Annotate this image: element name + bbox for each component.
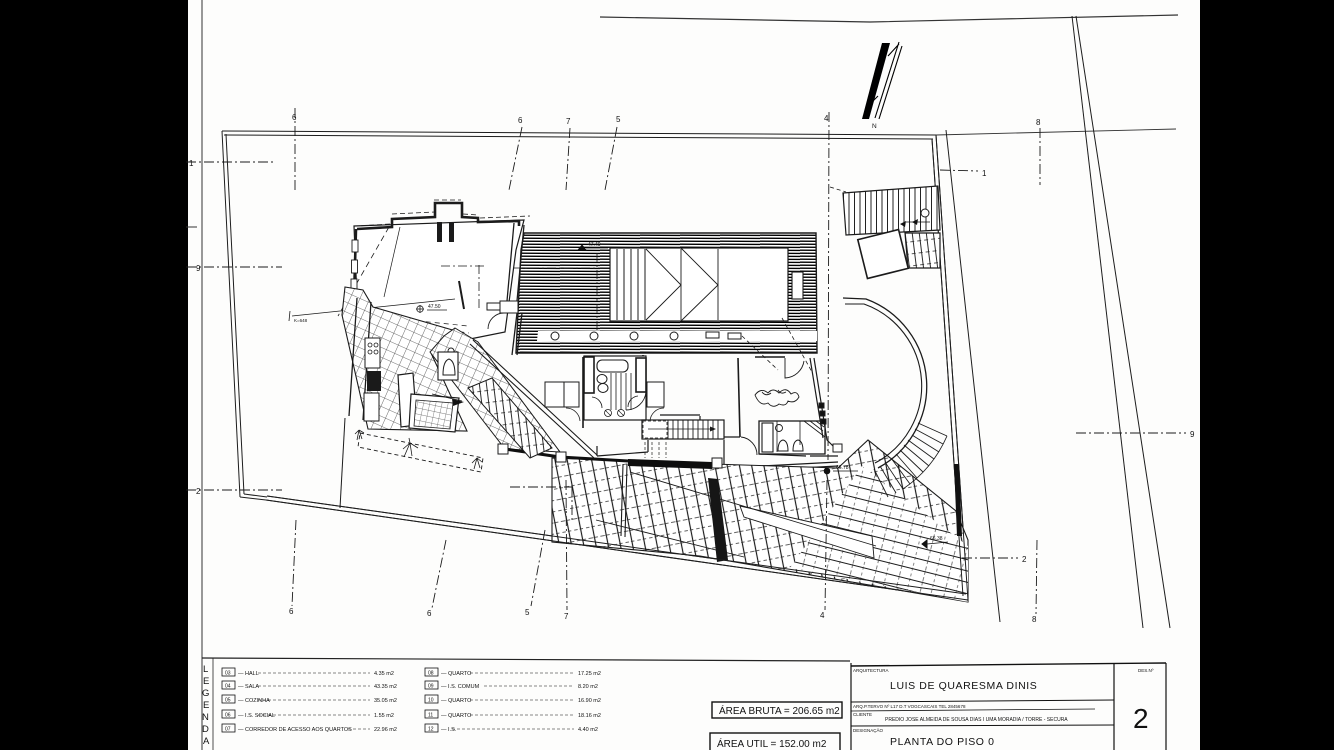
svg-text:08: 08 bbox=[428, 671, 434, 677]
svg-text:8: 8 bbox=[1036, 118, 1041, 127]
svg-text:ARQUITECTURA: ARQUITECTURA bbox=[853, 668, 889, 673]
svg-text:5: 5 bbox=[616, 115, 621, 124]
svg-text:43.35 m2: 43.35 m2 bbox=[374, 684, 397, 690]
svg-text:4.40 m2: 4.40 m2 bbox=[578, 727, 598, 733]
svg-text:G: G bbox=[202, 688, 209, 699]
svg-text:DES.Nº: DES.Nº bbox=[1138, 668, 1154, 673]
svg-text:66.38: 66.38 bbox=[930, 536, 943, 542]
svg-text:12: 12 bbox=[428, 727, 434, 733]
svg-text:D: D bbox=[202, 724, 209, 735]
svg-text:04: 04 bbox=[225, 684, 231, 690]
svg-text:— I.S. COMUM: — I.S. COMUM bbox=[441, 684, 480, 690]
svg-text:16.90 m2: 16.90 m2 bbox=[578, 698, 601, 704]
svg-text:1.55 m2: 1.55 m2 bbox=[374, 713, 394, 719]
svg-text:4: 4 bbox=[820, 611, 825, 620]
svg-text:LUIS DE QUARESMA DINIS: LUIS DE QUARESMA DINIS bbox=[890, 680, 1037, 692]
svg-text:11: 11 bbox=[428, 713, 433, 719]
svg-text:7: 7 bbox=[566, 117, 571, 126]
svg-text:K=648: K=648 bbox=[294, 318, 308, 323]
svg-text:2: 2 bbox=[1133, 703, 1149, 734]
svg-text:— QUARTO: — QUARTO bbox=[441, 698, 472, 704]
svg-text:N: N bbox=[872, 123, 877, 130]
svg-text:— I.S. SOCIAL: — I.S. SOCIAL bbox=[238, 713, 275, 719]
svg-text:47.50: 47.50 bbox=[428, 304, 441, 310]
svg-text:E: E bbox=[203, 700, 209, 711]
svg-text:— QUARTO: — QUARTO bbox=[441, 671, 472, 677]
svg-text:10: 10 bbox=[428, 698, 434, 704]
svg-text:CLIENTE: CLIENTE bbox=[853, 712, 872, 717]
svg-text:1: 1 bbox=[982, 169, 987, 178]
svg-text:5: 5 bbox=[525, 608, 530, 617]
svg-text:06: 06 bbox=[225, 713, 231, 719]
svg-text:N: N bbox=[202, 712, 209, 723]
svg-text:05: 05 bbox=[225, 698, 231, 704]
svg-text:07: 07 bbox=[225, 727, 231, 733]
svg-text:— CORREDOR DE ACESSO AOS QUART: — CORREDOR DE ACESSO AOS QUARTOS bbox=[238, 727, 352, 733]
svg-text:8: 8 bbox=[1032, 615, 1037, 624]
svg-text:6: 6 bbox=[427, 609, 432, 618]
svg-text:2: 2 bbox=[1022, 555, 1027, 564]
svg-text:ÁREA BRUTA = 206.65 m2: ÁREA BRUTA = 206.65 m2 bbox=[719, 704, 840, 717]
svg-text:E: E bbox=[203, 676, 209, 687]
svg-text:9: 9 bbox=[196, 264, 201, 273]
svg-text:1: 1 bbox=[189, 159, 194, 168]
svg-text:22.96 m2: 22.96 m2 bbox=[374, 727, 397, 733]
svg-text:66.78: 66.78 bbox=[836, 465, 849, 471]
svg-text:4.35 m2: 4.35 m2 bbox=[374, 671, 394, 677]
svg-text:PLANTA DO PISO 0: PLANTA DO PISO 0 bbox=[890, 736, 995, 748]
svg-text:17.25 m2: 17.25 m2 bbox=[578, 671, 601, 677]
svg-text:9: 9 bbox=[1190, 430, 1195, 439]
svg-text:— I.S.: — I.S. bbox=[441, 727, 457, 733]
svg-text:8.20 m2: 8.20 m2 bbox=[578, 684, 598, 690]
svg-text:6: 6 bbox=[518, 116, 523, 125]
svg-text:2: 2 bbox=[196, 487, 201, 496]
svg-text:ÁREA UTIL = 152.00 m2: ÁREA UTIL = 152.00 m2 bbox=[717, 737, 827, 750]
svg-text:— HALL: — HALL bbox=[238, 671, 259, 677]
svg-text:03: 03 bbox=[225, 671, 231, 677]
svg-text:35.05 m2: 35.05 m2 bbox=[374, 698, 397, 704]
svg-text:PREDIO JOSE ALMEIDA DE SOUSA D: PREDIO JOSE ALMEIDA DE SOUSA DIAS I UMA … bbox=[885, 717, 1068, 723]
svg-text:6: 6 bbox=[292, 113, 297, 122]
svg-text:— SALA: — SALA bbox=[238, 684, 259, 690]
svg-text:7: 7 bbox=[564, 612, 569, 621]
svg-text:A: A bbox=[203, 736, 210, 747]
svg-text:— QUARTO: — QUARTO bbox=[441, 713, 472, 719]
svg-text:6: 6 bbox=[289, 607, 294, 616]
svg-text:L: L bbox=[203, 664, 208, 675]
svg-text:DESIGNAÇÃO: DESIGNAÇÃO bbox=[853, 727, 884, 733]
svg-text:47.40: 47.40 bbox=[588, 242, 601, 248]
svg-text:09: 09 bbox=[428, 684, 434, 690]
svg-text:— COZINHA: — COZINHA bbox=[238, 698, 270, 704]
svg-text:18.16 m2: 18.16 m2 bbox=[578, 713, 601, 719]
svg-text:4: 4 bbox=[824, 114, 829, 123]
svg-text:ARQ.P.TERVO Nº L17 D.T VOGCA: ARQ.P.TERVO Nº L17 D.T VOGCASCAIS TEL 28… bbox=[853, 704, 966, 709]
